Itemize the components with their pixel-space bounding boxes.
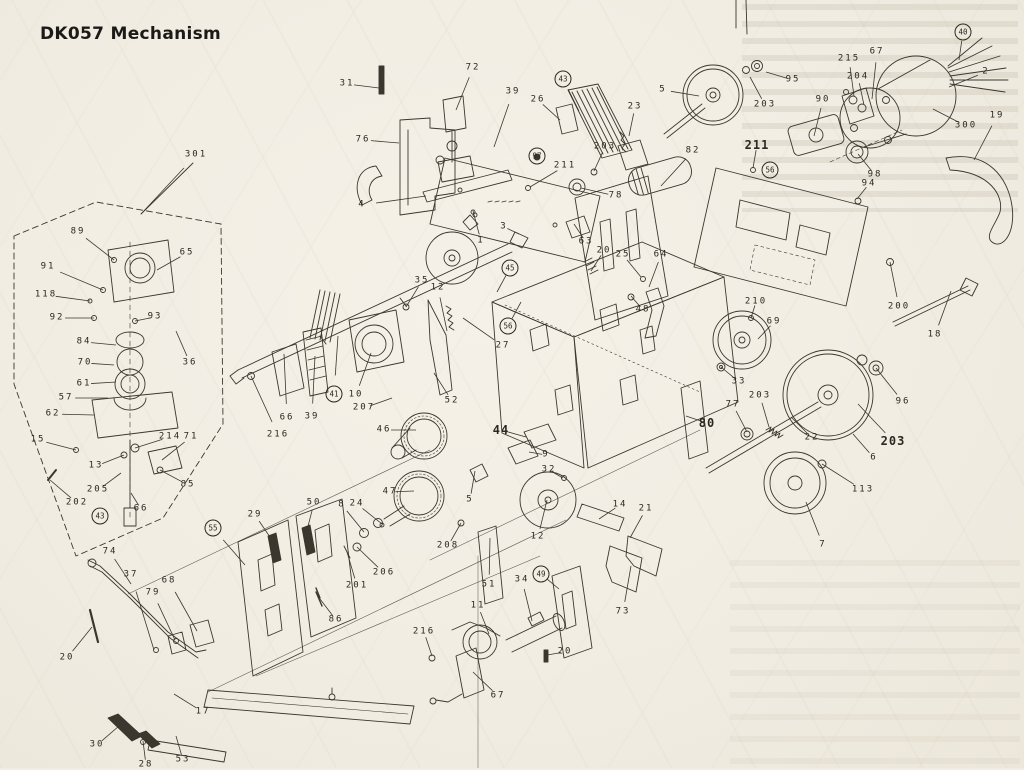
- part-label-84: 84: [77, 338, 92, 347]
- part-label-6: 6: [870, 454, 877, 463]
- part-label-3: 3: [500, 223, 507, 232]
- part-label-20: 20: [60, 654, 75, 663]
- part-label-32: 32: [542, 466, 557, 475]
- part-label-71: 71: [184, 433, 199, 442]
- part-label-41: 41: [326, 386, 343, 403]
- part-label-49: 49: [533, 566, 550, 583]
- part-label-35: 35: [415, 277, 430, 286]
- part-label-2: 2: [982, 68, 989, 77]
- part-label-36: 36: [183, 359, 198, 368]
- part-label-30: 30: [90, 741, 105, 750]
- part-label-216: 216: [267, 431, 289, 440]
- part-label-18: 18: [928, 331, 943, 340]
- part-label-52: 52: [445, 397, 460, 406]
- part-label-63: 63: [579, 238, 594, 247]
- part-label-39: 39: [506, 88, 521, 97]
- part-label-67: 67: [870, 48, 885, 57]
- part-label-77: 77: [726, 401, 741, 410]
- part-label-11: 11: [471, 602, 486, 611]
- part-label-65: 65: [180, 249, 195, 258]
- part-label-43: 43: [92, 508, 109, 525]
- part-label-27: 27: [496, 342, 511, 351]
- part-label-207: 207: [353, 404, 375, 413]
- part-label-20: 20: [597, 247, 612, 256]
- part-label-91: 91: [41, 263, 56, 272]
- part-label-203: 203: [749, 392, 771, 401]
- part-label-34: 34: [515, 576, 530, 585]
- part-label-8: 8: [338, 501, 345, 510]
- part-label-211: 211: [745, 139, 770, 151]
- part-label-66: 66: [280, 414, 295, 423]
- part-label-25: 25: [616, 251, 631, 260]
- part-label-10: 10: [349, 391, 364, 400]
- part-label-56: 56: [500, 318, 517, 335]
- part-label-56: 56: [762, 162, 779, 179]
- part-label-211: 211: [554, 162, 576, 171]
- part-label-64: 64: [654, 251, 669, 260]
- part-label-48: 48: [636, 306, 651, 315]
- part-label-92: 92: [50, 314, 65, 323]
- part-label-14: 14: [613, 501, 628, 510]
- part-label-24: 24: [350, 500, 365, 509]
- part-label-28: 28: [139, 761, 154, 770]
- part-label-85: 85: [181, 481, 196, 490]
- manual-page: 3018991118929365368470615762152147113205…: [0, 0, 1024, 768]
- part-label-215: 215: [838, 55, 860, 64]
- page-title: DK057 Mechanism: [40, 24, 221, 44]
- part-label-9: 9: [542, 451, 549, 460]
- part-label-29: 29: [248, 511, 263, 520]
- part-label-19: 19: [990, 112, 1005, 121]
- part-label-204: 204: [847, 73, 869, 82]
- part-label-203: 203: [594, 143, 616, 152]
- part-label-44: 44: [493, 424, 509, 436]
- part-label-46: 46: [377, 426, 392, 435]
- part-label-74: 74: [103, 548, 118, 557]
- part-label-94: 94: [862, 180, 877, 189]
- part-label-68: 68: [162, 577, 177, 586]
- part-label-80: 80: [699, 417, 715, 429]
- part-label-50: 50: [307, 499, 322, 508]
- part-label-96: 96: [896, 398, 911, 407]
- part-label-97: 97: [529, 148, 546, 165]
- part-label-4: 4: [358, 201, 365, 210]
- part-label-61: 61: [77, 380, 92, 389]
- part-label-55: 55: [205, 520, 222, 537]
- part-label-57: 57: [59, 394, 74, 403]
- part-labels-layer: 3018991118929365368470615762152147113205…: [0, 0, 1024, 768]
- part-label-1: 1: [477, 237, 484, 246]
- part-label-20: 20: [558, 648, 573, 657]
- part-label-13: 13: [89, 462, 104, 471]
- part-label-113: 113: [852, 486, 874, 495]
- part-label-93: 93: [148, 313, 163, 322]
- part-label-40: 40: [955, 24, 972, 41]
- part-label-53: 53: [176, 756, 191, 765]
- part-label-205: 205: [87, 486, 109, 495]
- part-label-7: 7: [819, 541, 826, 550]
- part-label-202: 202: [66, 499, 88, 508]
- part-label-37: 37: [124, 571, 139, 580]
- part-label-208: 208: [437, 542, 459, 551]
- part-label-23: 23: [628, 103, 643, 112]
- part-label-210: 210: [745, 298, 767, 307]
- part-label-12: 12: [431, 284, 446, 293]
- part-label-31: 31: [340, 80, 355, 89]
- part-label-15: 15: [31, 436, 46, 445]
- part-label-76: 76: [356, 136, 371, 145]
- part-label-89: 89: [71, 228, 86, 237]
- part-label-17: 17: [196, 708, 211, 717]
- part-label-118: 118: [35, 291, 57, 300]
- part-label-47: 47: [383, 488, 398, 497]
- part-label-203: 203: [754, 101, 776, 110]
- part-label-43: 43: [555, 71, 572, 88]
- part-label-301: 301: [185, 151, 207, 160]
- part-label-82: 82: [686, 147, 701, 156]
- part-label-39: 39: [305, 413, 320, 422]
- part-label-67: 67: [491, 692, 506, 701]
- part-label-79: 79: [146, 589, 161, 598]
- part-label-69: 69: [767, 318, 782, 327]
- part-label-22: 22: [805, 434, 820, 443]
- part-label-5: 5: [466, 496, 473, 505]
- part-label-206: 206: [373, 569, 395, 578]
- part-label-203: 203: [881, 435, 906, 447]
- part-label-51: 51: [482, 581, 497, 590]
- part-label-5: 5: [659, 86, 666, 95]
- part-label-78: 78: [609, 192, 624, 201]
- part-label-26: 26: [531, 96, 546, 105]
- part-label-66: 66: [134, 505, 149, 514]
- part-label-95: 95: [786, 76, 801, 85]
- part-label-21: 21: [639, 505, 654, 514]
- part-label-90: 90: [816, 96, 831, 105]
- part-label-201: 201: [346, 582, 368, 591]
- part-label-62: 62: [46, 410, 61, 419]
- part-label-72: 72: [466, 64, 481, 73]
- part-label-214: 214: [159, 433, 181, 442]
- part-label-45: 45: [502, 260, 519, 277]
- part-label-300: 300: [955, 122, 977, 131]
- part-label-12: 12: [531, 533, 546, 542]
- part-label-200: 200: [888, 303, 910, 312]
- part-label-73: 73: [616, 608, 631, 617]
- part-label-86: 86: [329, 616, 344, 625]
- part-label-70: 70: [78, 359, 93, 368]
- part-label-33: 33: [732, 378, 747, 387]
- part-label-216: 216: [413, 628, 435, 637]
